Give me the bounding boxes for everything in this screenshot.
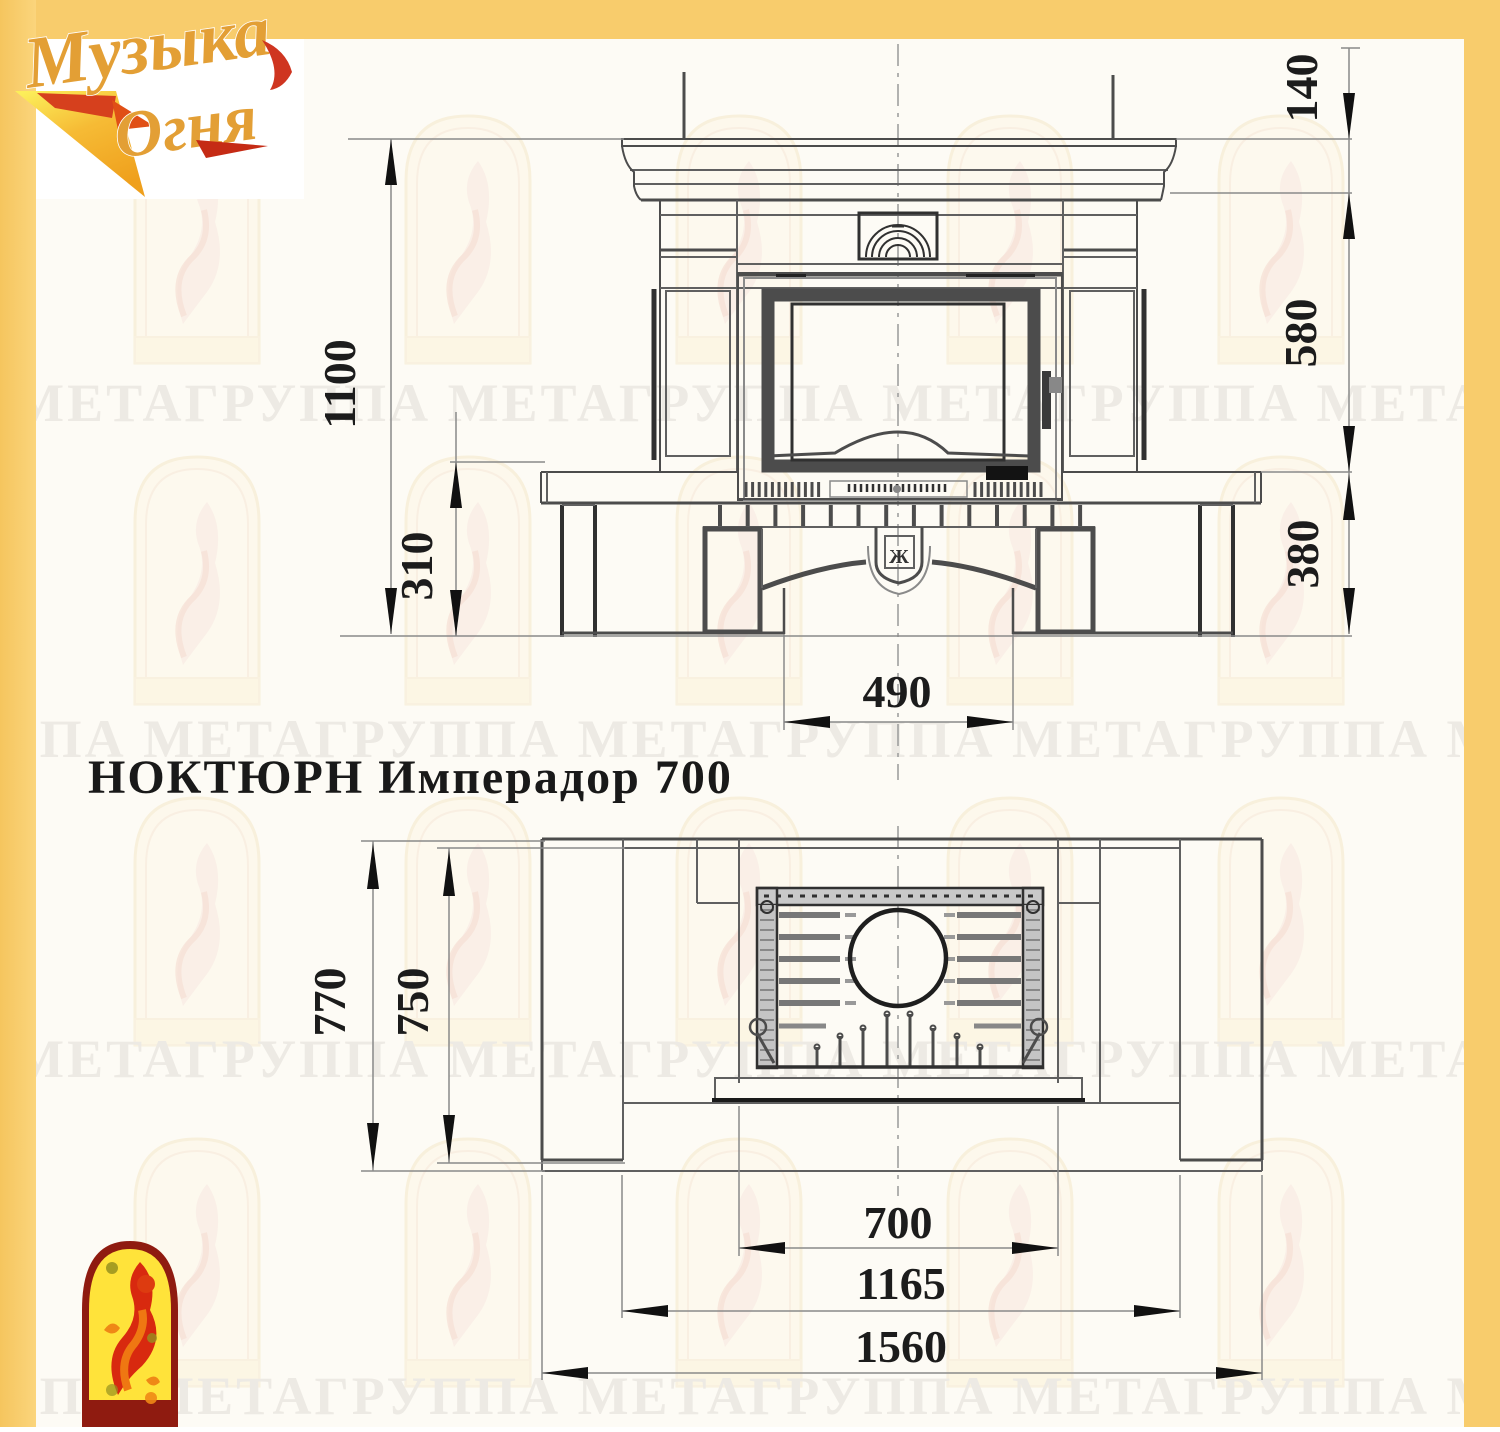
svg-text:750: 750	[387, 968, 438, 1037]
svg-text:1100: 1100	[314, 339, 365, 428]
svg-text:770: 770	[304, 968, 355, 1037]
svg-text:1165: 1165	[856, 1258, 945, 1309]
svg-text:Ж: Ж	[889, 546, 909, 568]
svg-text:310: 310	[391, 532, 442, 601]
svg-text:380: 380	[1277, 520, 1328, 589]
svg-text:ГРУППА МЕТАГРУППА МЕТАГРУППА М: ГРУППА МЕТАГРУППА МЕТАГРУППА МЕТАГРУППА …	[0, 1366, 1500, 1426]
svg-text:140: 140	[1276, 54, 1327, 123]
svg-text:700: 700	[864, 1197, 933, 1248]
svg-text:ГРУППА МЕТАГРУППА МЕТАГРУППА М: ГРУППА МЕТАГРУППА МЕТАГРУППА МЕТАГРУППА …	[0, 1029, 1488, 1089]
svg-text:490: 490	[863, 666, 932, 717]
svg-text:580: 580	[1275, 299, 1326, 368]
svg-text:1560: 1560	[855, 1321, 947, 1372]
svg-text:НОКТЮРН Имперадор 700: НОКТЮРН Имперадор 700	[88, 751, 733, 804]
